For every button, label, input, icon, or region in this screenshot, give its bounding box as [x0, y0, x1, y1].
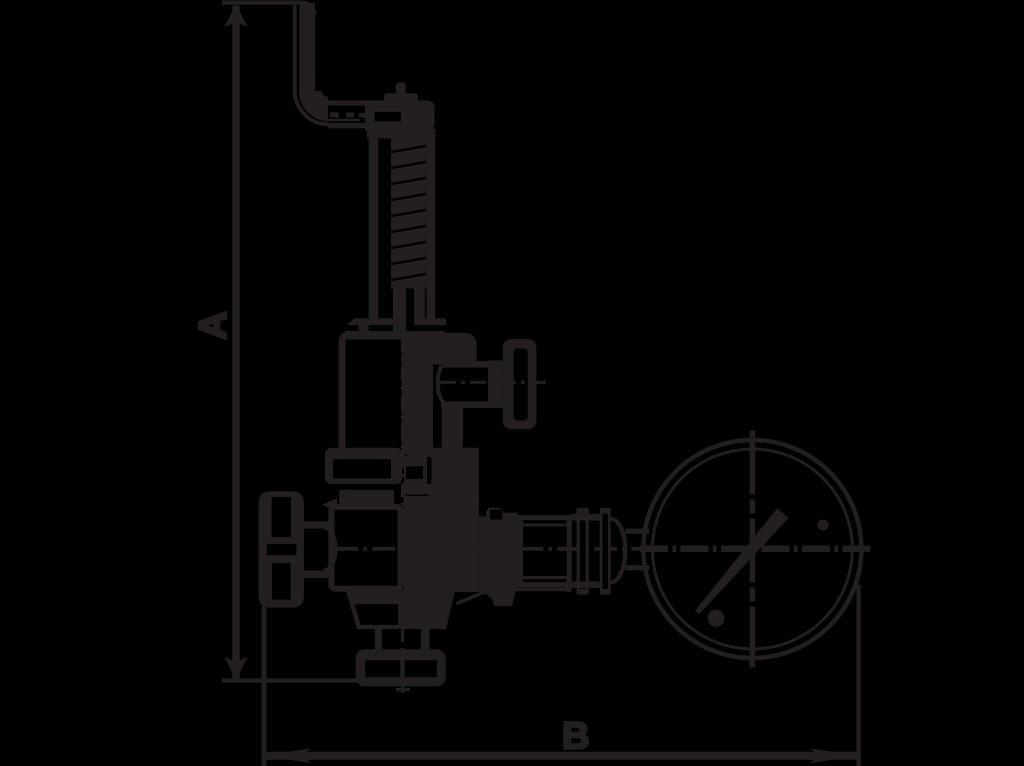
svg-text:B: B [562, 716, 589, 758]
svg-text:A: A [192, 311, 235, 339]
